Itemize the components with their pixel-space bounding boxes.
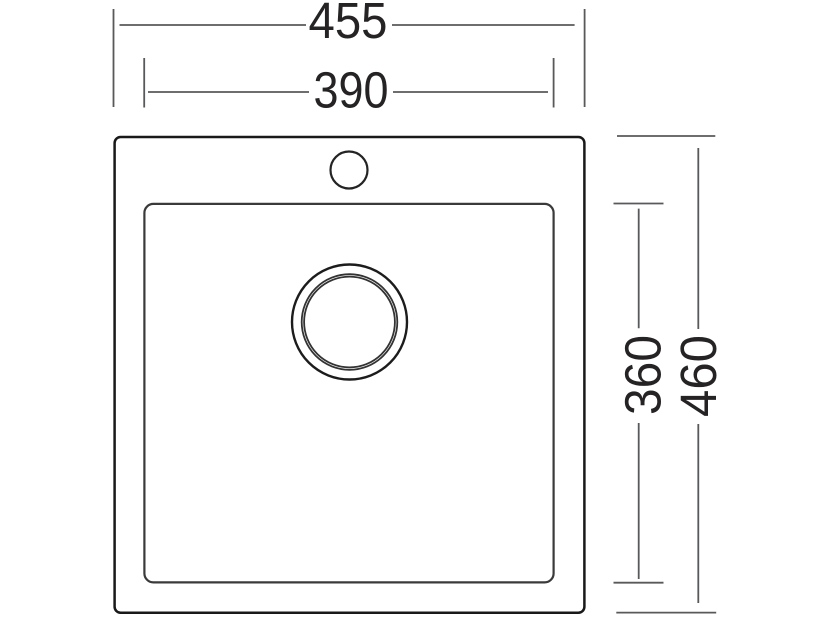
svg-text:360: 360 [615,335,672,415]
svg-text:460: 460 [670,335,727,417]
svg-text:390: 390 [314,61,389,118]
svg-text:455: 455 [309,0,388,49]
